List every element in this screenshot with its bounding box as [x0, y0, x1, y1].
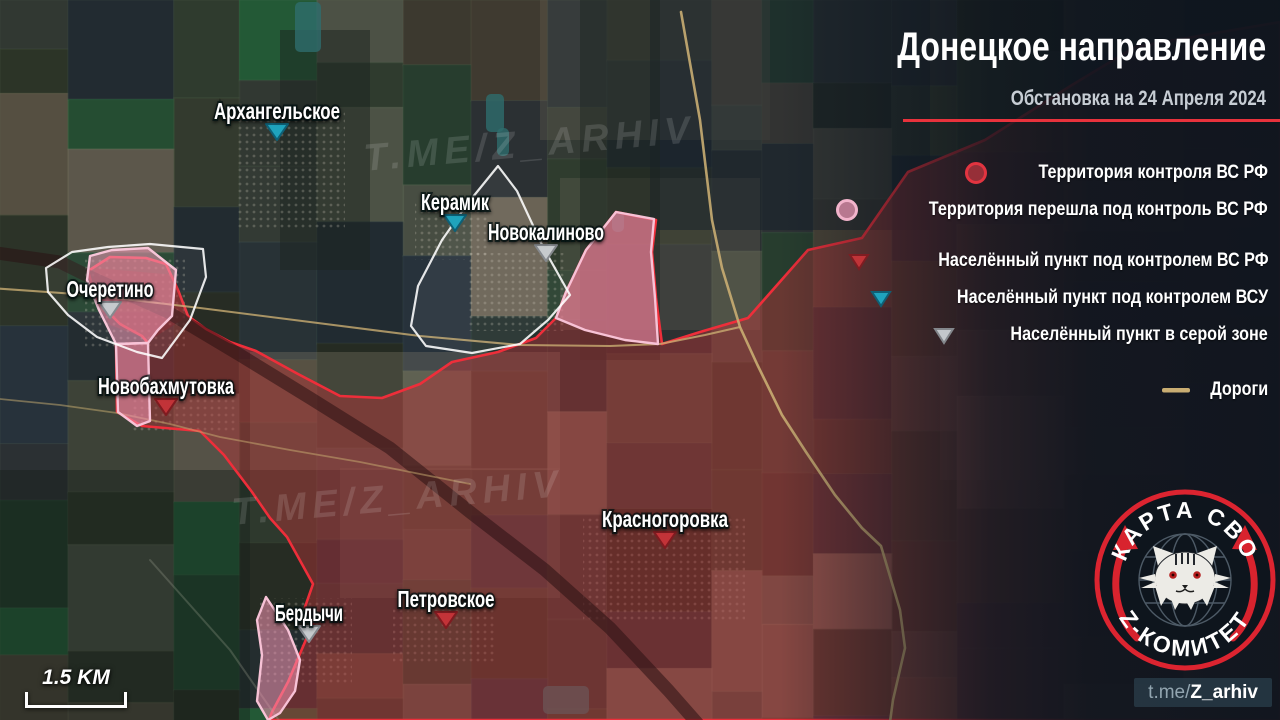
legend-row-grey-settlement: Населённый пункт в серой зоне	[932, 321, 1268, 349]
page-title: Донецкое направление	[897, 26, 1266, 68]
town-label: Петровское	[398, 586, 495, 612]
water-body	[497, 128, 509, 156]
town-label: Новокалиново	[488, 219, 604, 245]
grey-triangle-icon	[932, 323, 956, 347]
legend-row-rf-settlement: Населённый пункт под контролем ВС РФ	[847, 247, 1268, 275]
legend-label: Территория перешла под контроль ВС РФ	[929, 199, 1268, 221]
page-subtitle: Обстановка на 24 Апреля 2024	[1011, 87, 1266, 111]
legend-label: Населённый пункт под контролем ВСУ	[957, 287, 1268, 309]
z-komitet-logo: КАРТА СВО Z-КОМИТЕТ	[1090, 485, 1280, 675]
town-label: Очеретино	[67, 276, 154, 302]
pink-circle-icon	[834, 197, 860, 223]
info-panel: Донецкое направление Обстановка на 24 Ап…	[780, 0, 1280, 720]
telegram-handle[interactable]: t.me/Z_arhiv	[1134, 678, 1272, 707]
water-body	[295, 2, 321, 52]
map-canvas: АрхангельскоеКерамикНовокалиновоОчеретин…	[0, 0, 1280, 720]
legend-row-rf-territory: Территория контроля ВС РФ	[963, 159, 1268, 187]
scale-bar	[25, 692, 127, 708]
town-label: Красногоровка	[602, 506, 728, 532]
town-label: Бердычи	[275, 600, 343, 626]
telegram-prefix: t.me/	[1148, 682, 1190, 704]
settlement-texture	[235, 112, 345, 230]
legend-row-roads: Дороги	[1161, 376, 1268, 404]
legend-row-captured-territory: Территория перешла под контроль ВС РФ	[834, 196, 1268, 224]
legend-label: Территория контроля ВС РФ	[1039, 162, 1268, 184]
legend-row-afu-settlement: Населённый пункт под контролем ВСУ	[869, 284, 1268, 312]
telegram-name: Z_arhiv	[1190, 682, 1258, 704]
water-body	[486, 94, 504, 132]
legend-label: Населённый пункт в серой зоне	[1011, 324, 1268, 346]
legend-label: Дороги	[1210, 379, 1268, 401]
town-label: Керамик	[421, 189, 489, 215]
road-line-icon	[1161, 378, 1191, 402]
town-label: Архангельское	[214, 98, 340, 124]
red-circle-icon	[963, 160, 989, 186]
red-triangle-icon	[847, 249, 871, 273]
town-label: Новобахмутовка	[98, 373, 234, 399]
scale-label: 1.5 KM	[28, 666, 124, 690]
teal-triangle-icon	[869, 286, 893, 310]
legend-label: Населённый пункт под контролем ВС РФ	[938, 250, 1268, 272]
title-underline	[903, 119, 1280, 122]
